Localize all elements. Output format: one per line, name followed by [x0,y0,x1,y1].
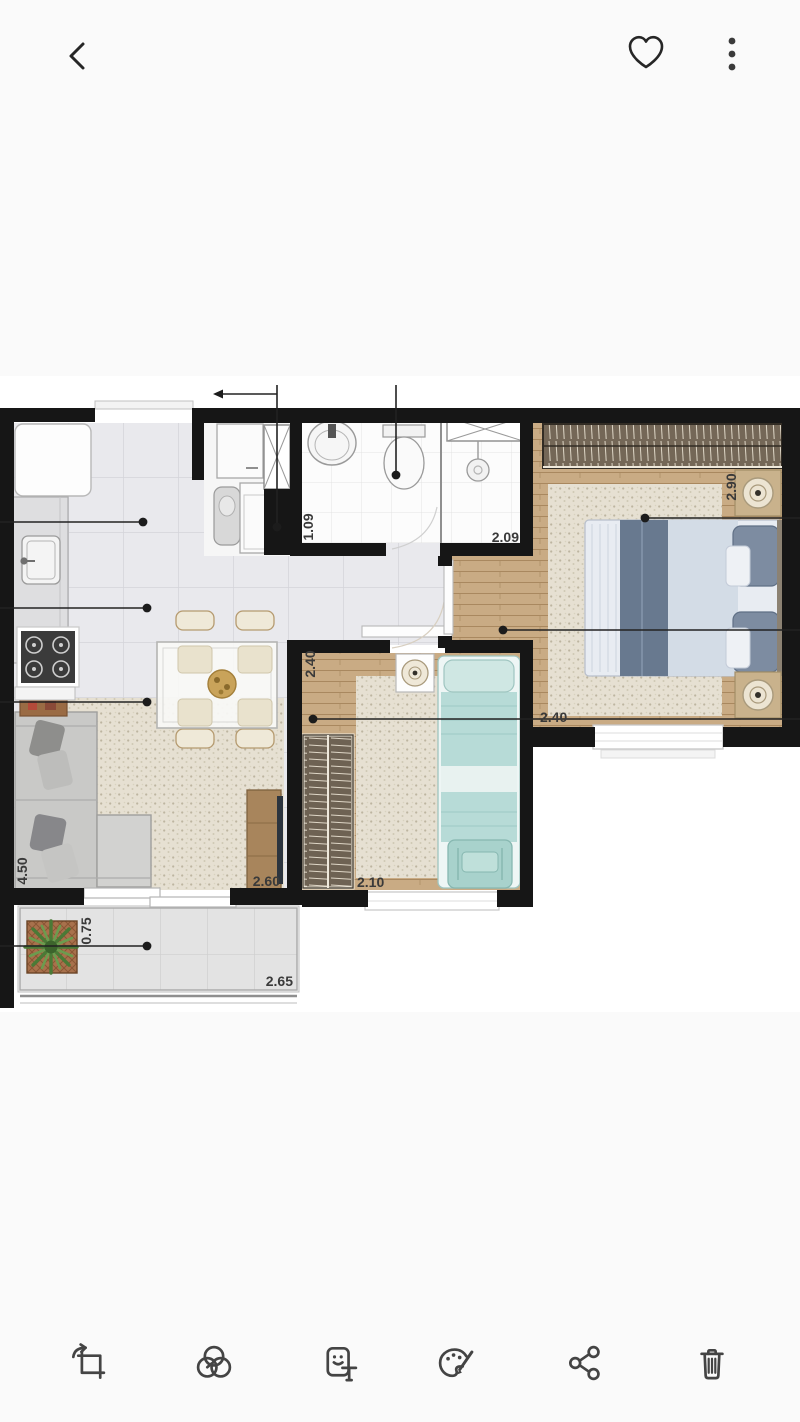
share-icon [563,1373,607,1388]
stove [17,627,79,687]
pillow [444,660,514,692]
dimension-label: 2.90 [723,473,739,500]
gallery-photo-viewer-screen: { "screen": { "type": "photo-viewer", "s… [0,0,800,1422]
refrigerator [15,424,91,496]
bedroom2-wardrobe [303,735,353,888]
photo-view[interactable]: 1.09 2.09 2.90 2.40 2.40 2.60 2.10 4.50 … [0,376,800,1012]
master-window [593,725,723,758]
crop-rotate-icon [66,1373,110,1388]
crop-rotate-button[interactable] [66,1341,110,1385]
kitchen-cabinet [15,687,75,700]
dimension-label: 2.60 [253,873,280,889]
balcony [18,906,299,1003]
share-button[interactable] [563,1341,607,1385]
floor-plan-image: 1.09 2.09 2.90 2.40 2.40 2.60 2.10 4.50 … [0,376,800,1012]
toilet [383,425,425,489]
dimension-label: 1.09 [300,513,316,540]
dimension-label: 2.40 [540,709,567,725]
bedroom2-window [365,892,499,910]
hallway-door [444,560,453,634]
more-options-button[interactable] [710,32,754,76]
entry-door [95,401,193,409]
dimension-label: 2.09 [492,529,519,545]
plant [25,921,77,973]
dimension-label: 4.50 [14,857,30,884]
chevron-left-icon [56,34,100,78]
bedroom2-nightstand [396,654,434,692]
draw-decorate-button[interactable] [434,1341,478,1385]
delete-button[interactable] [690,1341,734,1385]
dimension-label: 2.10 [357,874,384,890]
bedroom2-rug [356,676,440,878]
single-bed [438,656,520,888]
dimension-label: 2.65 [266,973,293,989]
bedroom2-door [362,626,452,637]
palette-pen-icon [434,1373,478,1388]
kitchen-sink [20,536,60,584]
sticker-text-icon [318,1373,362,1388]
nightstand [735,470,781,516]
back-button[interactable] [56,34,100,78]
master-bed [585,520,782,676]
effects-button[interactable] [192,1341,236,1385]
effects-circles-icon [192,1373,236,1388]
favorite-button[interactable] [624,31,668,75]
top-app-bar [0,0,800,120]
bottom-toolbar [0,1318,800,1422]
dimension-label: 2.40 [302,650,318,677]
nightstand [735,672,781,718]
heart-outline-icon [624,31,668,75]
vertical-ellipsis-icon [710,32,754,76]
trash-icon [690,1373,734,1388]
sticker-text-button[interactable] [318,1341,362,1385]
tv [277,796,283,884]
laundry-cabinet [217,424,263,478]
dimension-label: 0.75 [78,917,94,944]
